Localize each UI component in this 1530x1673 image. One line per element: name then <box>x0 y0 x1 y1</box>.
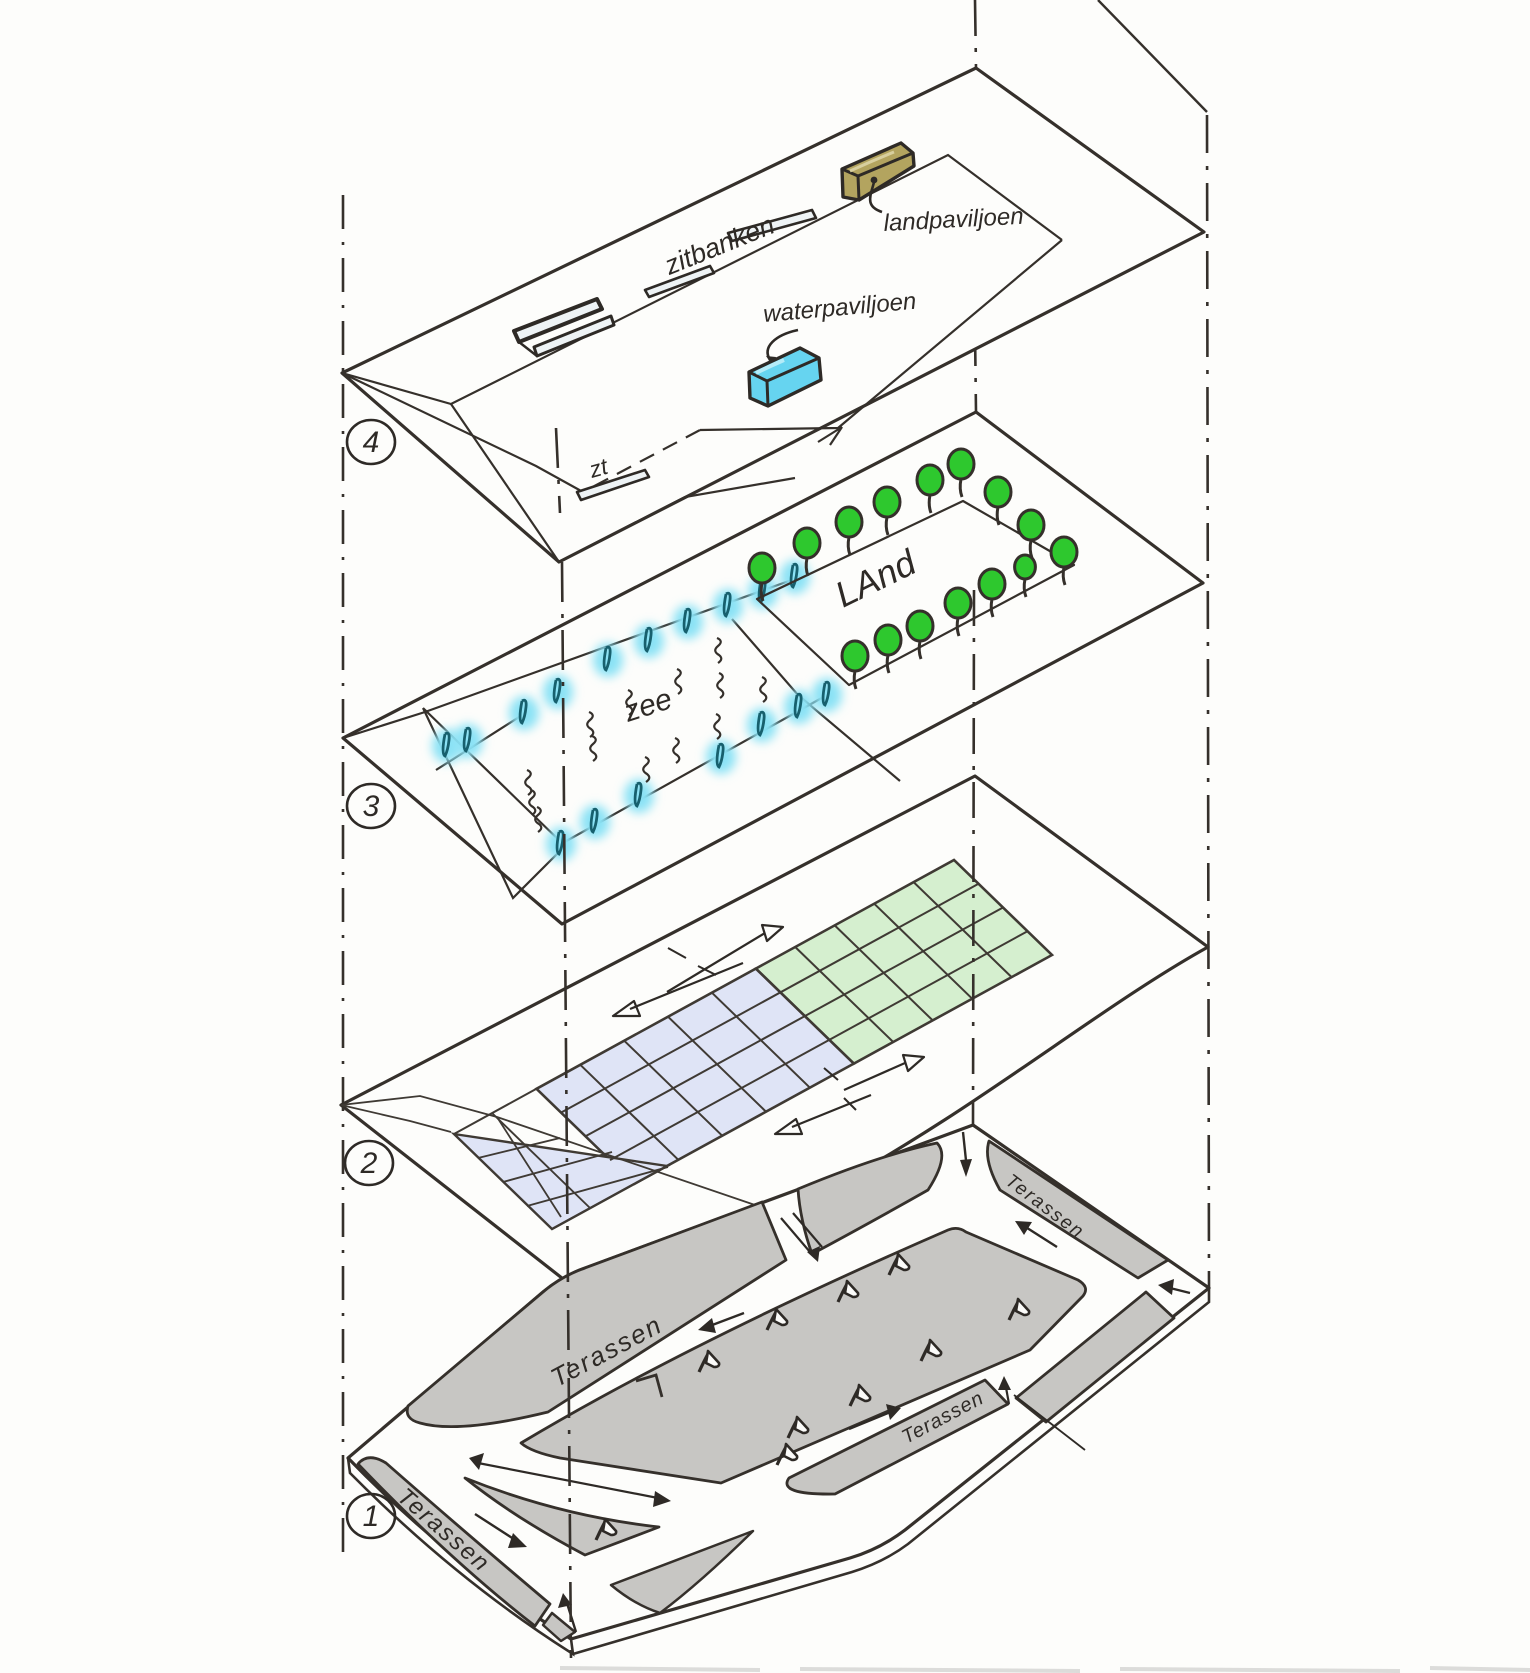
svg-text:1: 1 <box>363 1500 380 1533</box>
svg-text:4: 4 <box>363 426 380 459</box>
svg-text:2: 2 <box>360 1147 378 1180</box>
svg-text:3: 3 <box>363 790 380 823</box>
